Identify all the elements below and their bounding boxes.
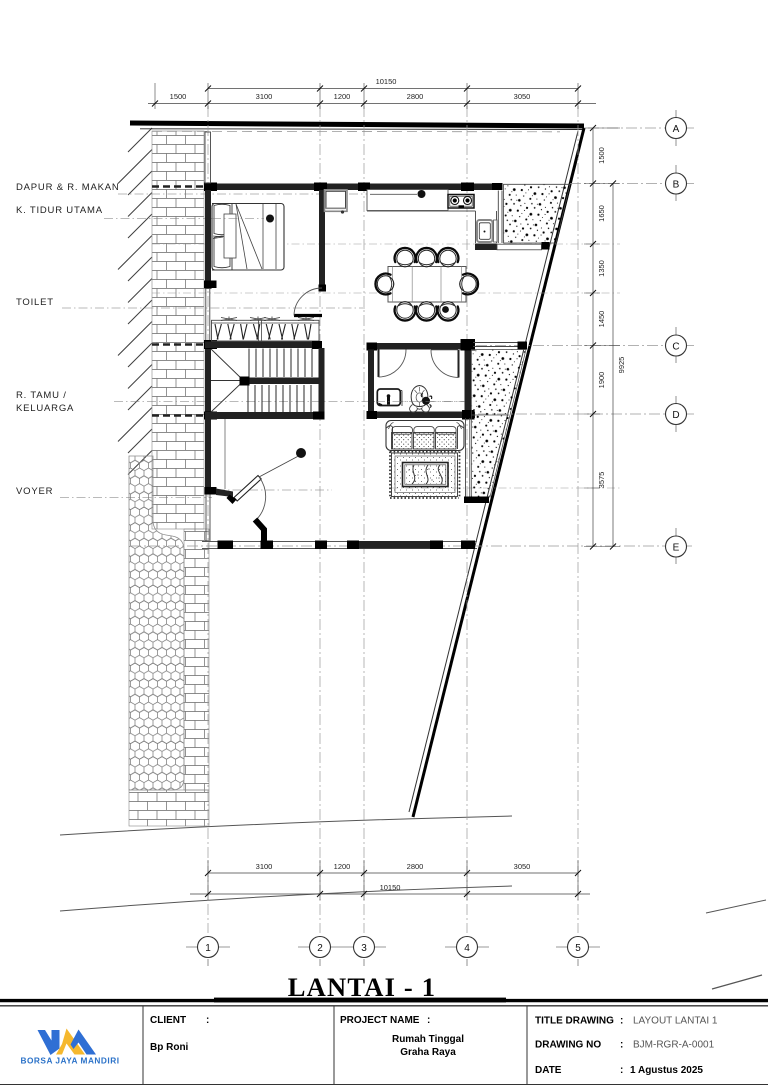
- svg-text:2: 2: [317, 943, 323, 954]
- svg-text:TOILET: TOILET: [16, 297, 54, 308]
- svg-text:2800: 2800: [407, 862, 424, 871]
- svg-text:1200: 1200: [334, 92, 351, 101]
- svg-text:3100: 3100: [256, 862, 273, 871]
- svg-text:DRAWING NO: DRAWING NO: [535, 1040, 601, 1051]
- svg-text::: :: [427, 1015, 430, 1026]
- svg-text:1350: 1350: [597, 260, 606, 277]
- svg-text:DAPUR & R. MAKAN: DAPUR & R. MAKAN: [16, 182, 120, 193]
- svg-text:1500: 1500: [170, 92, 187, 101]
- svg-text:10150: 10150: [376, 77, 397, 86]
- svg-text:C: C: [672, 341, 679, 352]
- svg-text:D: D: [672, 410, 679, 421]
- svg-text:5: 5: [575, 943, 581, 954]
- svg-text:K. TIDUR UTAMA: K. TIDUR UTAMA: [16, 205, 103, 216]
- svg-text:E: E: [673, 542, 680, 553]
- svg-text:TITLE DRAWING: TITLE DRAWING: [535, 1016, 614, 1027]
- svg-text:9925: 9925: [617, 357, 626, 374]
- svg-text:1650: 1650: [597, 205, 606, 222]
- svg-text:PROJECT NAME: PROJECT NAME: [340, 1015, 420, 1026]
- svg-text:Bp Roni: Bp Roni: [150, 1042, 189, 1053]
- svg-text:B: B: [673, 179, 680, 190]
- svg-text:1 Agustus 2025: 1 Agustus 2025: [630, 1065, 703, 1076]
- svg-text:DATE: DATE: [535, 1065, 562, 1076]
- svg-text:1: 1: [205, 943, 211, 954]
- svg-text:BORSA JAYA MANDIRI: BORSA JAYA MANDIRI: [20, 1056, 119, 1066]
- svg-text:1200: 1200: [334, 862, 351, 871]
- svg-text::: :: [620, 1040, 623, 1051]
- svg-text:3100: 3100: [256, 92, 273, 101]
- svg-text:LAYOUT LANTAI 1: LAYOUT LANTAI 1: [633, 1016, 718, 1027]
- svg-text:Graha Raya: Graha Raya: [400, 1047, 456, 1058]
- svg-text:10150: 10150: [380, 883, 401, 892]
- svg-text:LANTAI - 1: LANTAI - 1: [288, 972, 436, 1002]
- svg-text:KELUARGA: KELUARGA: [16, 403, 74, 414]
- svg-text:4: 4: [464, 943, 470, 954]
- svg-text:1450: 1450: [597, 311, 606, 328]
- svg-text::: :: [620, 1016, 623, 1027]
- svg-text:3050: 3050: [514, 92, 531, 101]
- svg-text:BJM-RGR-A-0001: BJM-RGR-A-0001: [633, 1040, 715, 1051]
- svg-text:R. TAMU /: R. TAMU /: [16, 390, 67, 401]
- svg-text:3: 3: [361, 943, 367, 954]
- svg-text::: :: [206, 1015, 209, 1026]
- svg-text:A: A: [673, 124, 680, 135]
- svg-text:1900: 1900: [597, 372, 606, 389]
- svg-text:1500: 1500: [597, 147, 606, 164]
- svg-text:3050: 3050: [514, 862, 531, 871]
- svg-text:2800: 2800: [407, 92, 424, 101]
- svg-text:3575: 3575: [597, 472, 606, 489]
- svg-text:Rumah Tinggal: Rumah Tinggal: [392, 1034, 464, 1045]
- svg-text:CLIENT: CLIENT: [150, 1015, 186, 1026]
- svg-text:VOYER: VOYER: [16, 486, 53, 497]
- svg-text::: :: [620, 1065, 623, 1076]
